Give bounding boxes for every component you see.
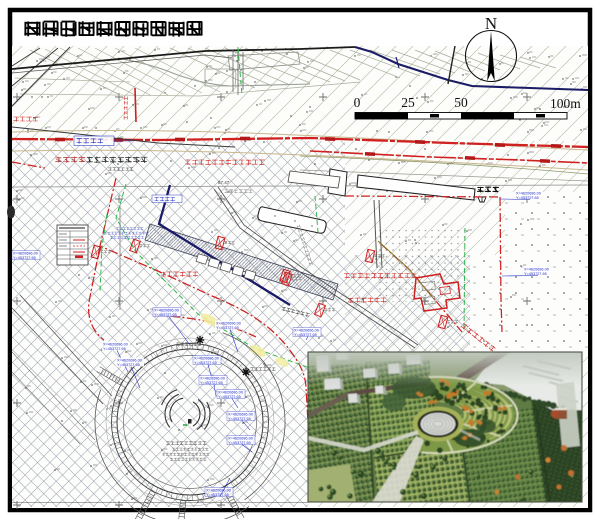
svg-text:0: 0: [354, 95, 361, 110]
svg-text:Y=453727.65: Y=453727.65: [13, 256, 36, 260]
svg-text:87.47: 87.47: [218, 180, 230, 185]
svg-text:Y=453727.65: Y=453727.65: [117, 363, 140, 367]
svg-text:50: 50: [454, 95, 468, 110]
svg-text:Y=453727.65: Y=453727.65: [228, 417, 251, 421]
svg-text:Y=453727.65: Y=453727.65: [103, 347, 126, 351]
svg-text:Y=453727.65: Y=453727.65: [228, 441, 251, 445]
svg-text:25: 25: [401, 95, 415, 110]
svg-text:Y=453727.65: Y=453727.65: [200, 381, 223, 385]
svg-text:Y=453727.65: Y=453727.65: [154, 313, 177, 317]
svg-text:100m: 100m: [550, 96, 581, 111]
svg-text:Y=453727.65: Y=453727.65: [194, 361, 217, 365]
svg-text:Y=453727.65: Y=453727.65: [206, 493, 229, 497]
svg-text:Y=453727.65: Y=453727.65: [294, 333, 317, 337]
svg-text:Y=453727.65: Y=453727.65: [216, 326, 239, 330]
svg-text:N: N: [485, 14, 497, 33]
svg-text:Y=453727.65: Y=453727.65: [218, 395, 241, 399]
